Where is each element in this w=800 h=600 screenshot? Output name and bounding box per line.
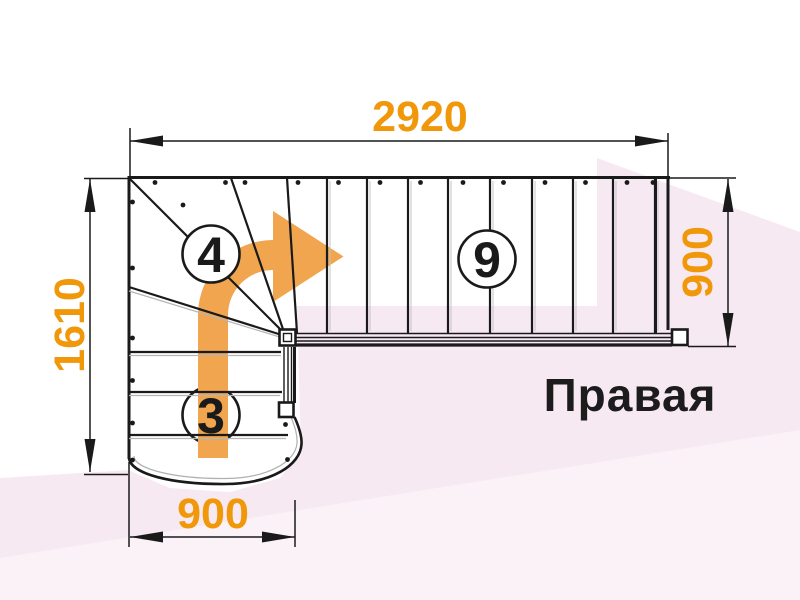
dimension-bottom-value: 900 <box>177 490 249 538</box>
corner-post-inner <box>284 334 292 342</box>
end-post <box>672 330 688 346</box>
dimension-top-value: 2920 <box>372 93 468 141</box>
winder-count-label: 4 <box>197 227 225 283</box>
lower-post <box>279 403 294 418</box>
dimension-left-value: 1610 <box>46 277 94 373</box>
dimension-right-value: 900 <box>674 226 722 298</box>
orientation-title: Правая <box>544 369 717 421</box>
plan-canvas: 4 9 3 2920 1610 900 900 Правая <box>0 0 800 600</box>
straight-flight-count-label: 9 <box>473 232 501 288</box>
lower-flight-count-label: 3 <box>197 388 225 444</box>
staircase-plan-drawing: 4 9 3 2920 1610 900 900 Правая <box>0 0 800 600</box>
